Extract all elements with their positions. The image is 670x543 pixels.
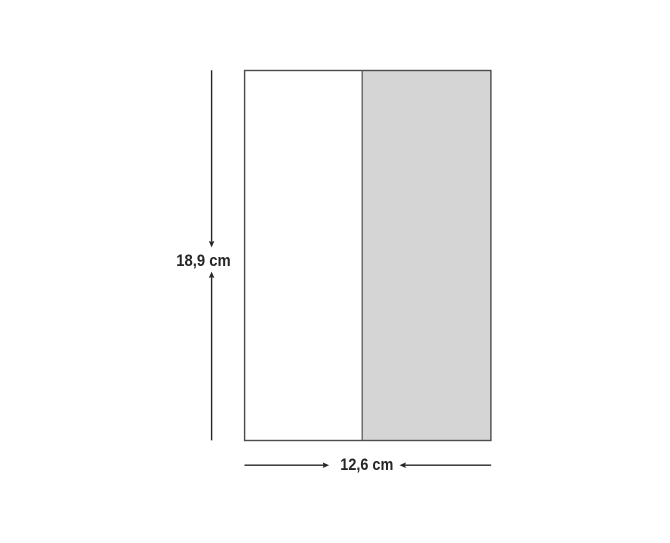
svg-text:12,6 cm: 12,6 cm [340, 455, 393, 474]
svg-text:18,9 cm: 18,9 cm [176, 251, 230, 270]
